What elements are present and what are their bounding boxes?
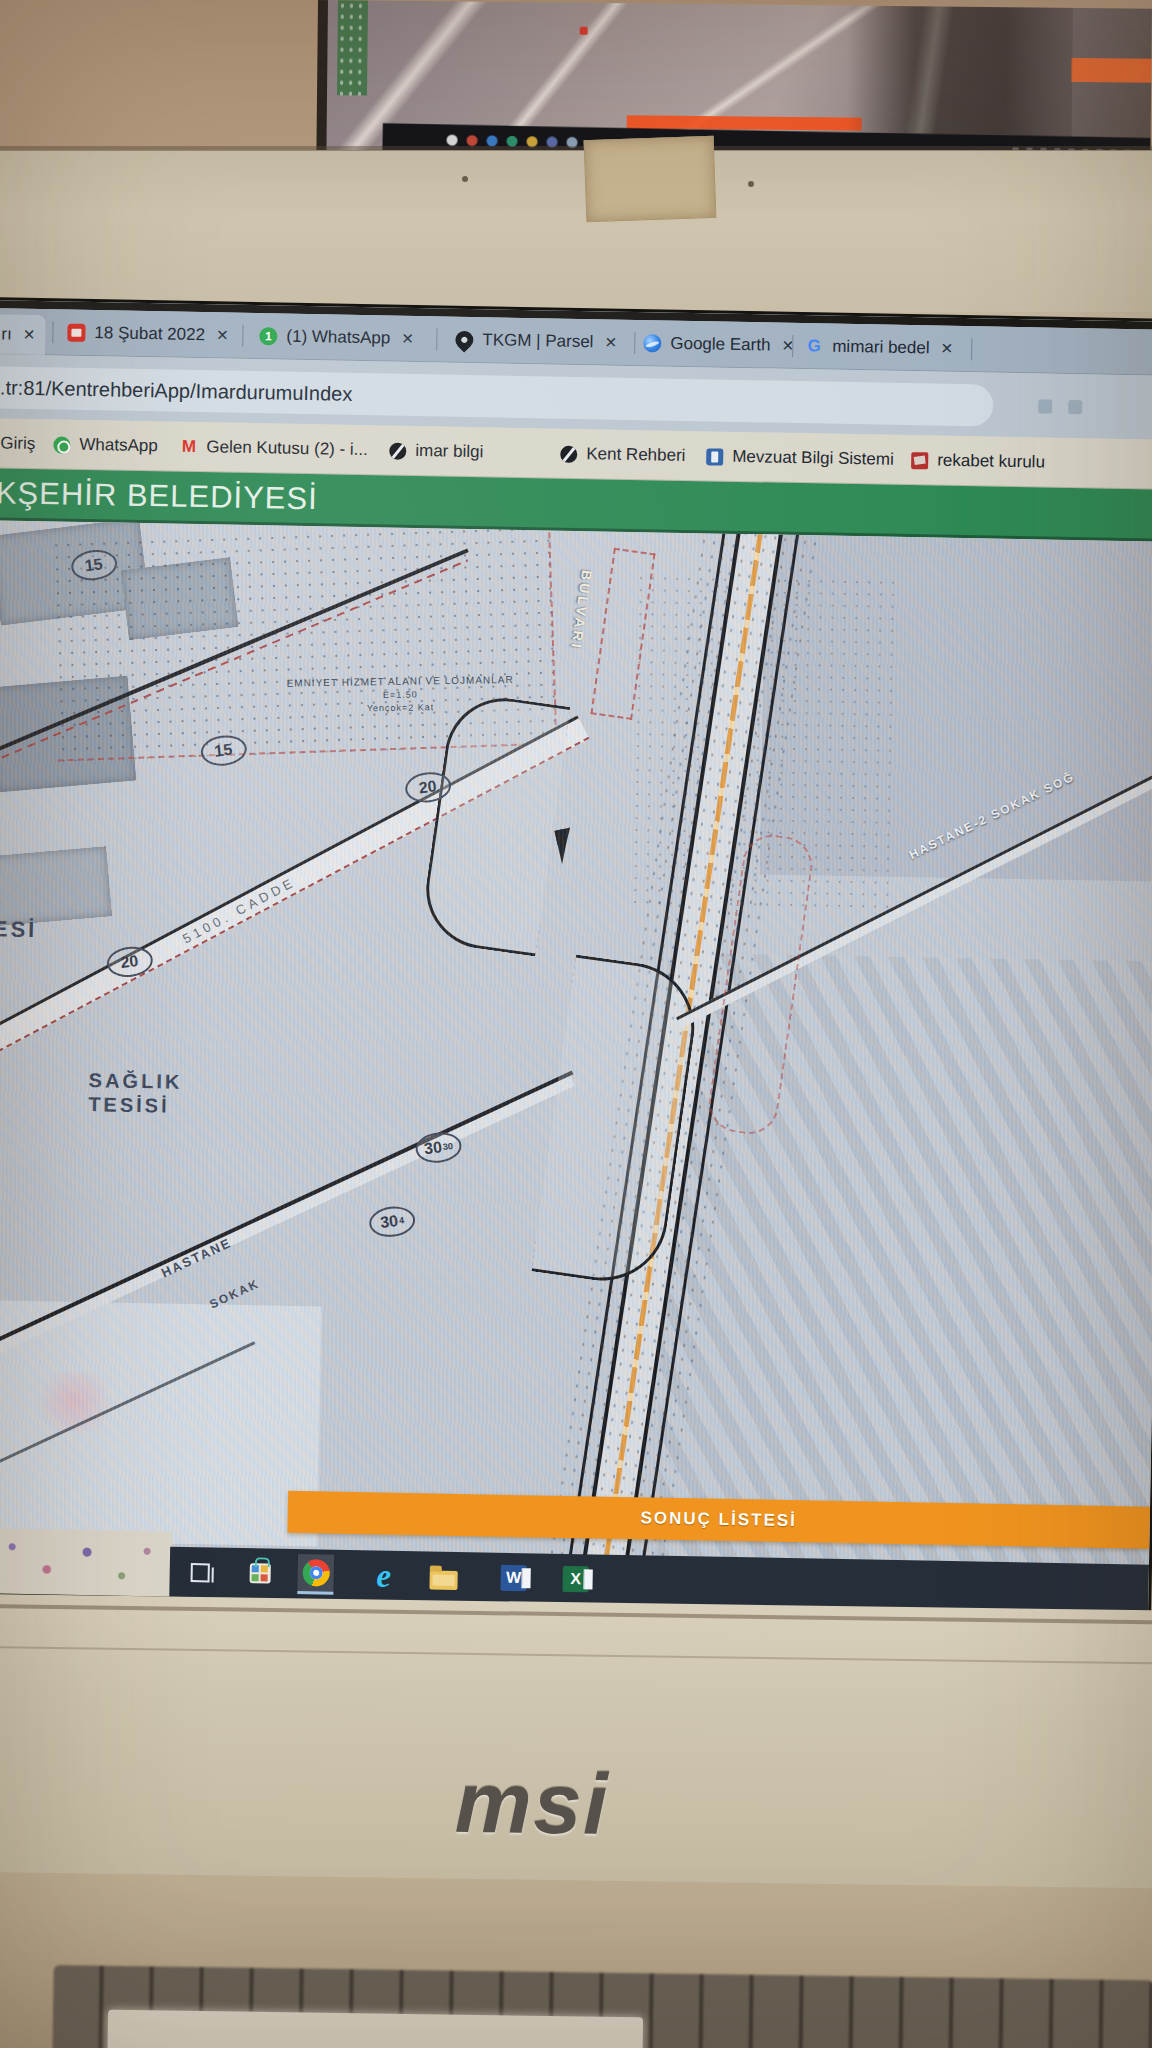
microphone-hole [462, 176, 468, 182]
page-title: ÜKŞEHİR BELEDİYESİ [0, 474, 318, 516]
road-width-marker: 304 [368, 1204, 417, 1239]
close-icon[interactable]: ✕ [214, 326, 231, 344]
laptop-screen: rı ✕ 18 Şubat 2022 ✕ 1 (1) WhatsApp ✕ TK… [0, 300, 1152, 1622]
marker-value: 20 [418, 777, 438, 797]
file-explorer-icon [429, 1570, 457, 1590]
google-favicon: G [805, 337, 823, 355]
close-icon[interactable]: ✕ [602, 333, 619, 351]
marker-value: 30 [379, 1212, 399, 1232]
task-view-icon [190, 1563, 209, 1582]
photo-scene: rı ✕ 18 Şubat 2022 ✕ 1 (1) WhatsApp ✕ TK… [0, 0, 1152, 2048]
word-button[interactable]: W [495, 1558, 532, 1599]
facility-label-tesi: TESİ [0, 916, 38, 943]
monitor-orange-chip [1071, 58, 1152, 83]
google-earth-favicon [643, 334, 661, 352]
chrome-button[interactable] [297, 1554, 334, 1595]
msi-logo: msi [454, 1753, 610, 1854]
close-icon[interactable]: ✕ [938, 340, 955, 358]
tab-whatsapp[interactable]: 1 (1) WhatsApp ✕ [259, 313, 416, 362]
whatsapp-favicon: 1 [259, 327, 277, 345]
marker-value: 20 [119, 952, 139, 972]
excel-icon: X [562, 1566, 588, 1592]
tab-label: Google Earth [670, 334, 771, 356]
desktop-wallpaper [0, 1528, 172, 1598]
tab-separator [242, 325, 243, 347]
gmail-icon: M [180, 438, 197, 455]
laptop-lid-edge [0, 146, 1152, 151]
monitor-taskbar-icon [486, 135, 497, 146]
bookmark-label: imar bilgi [415, 441, 483, 462]
hinge-line [0, 1604, 1152, 1625]
bookmark-label: Giriş [0, 433, 35, 454]
webcam-tape [584, 136, 717, 222]
calendar-page-favicon [67, 324, 85, 342]
bookmark-whatsapp[interactable]: WhatsApp [53, 419, 158, 471]
tab-label: 18 Şubat 2022 [94, 323, 205, 345]
marker-value: 15 [213, 741, 233, 761]
bookmark-label: rekabet kurulu [937, 451, 1045, 473]
marker-sup: 30 [442, 1141, 453, 1152]
microphone-hole [748, 181, 754, 187]
bookmark-gelen-kutusu[interactable]: M Gelen Kutusu (2) - i... [180, 422, 368, 475]
tab-18-subat[interactable]: 18 Şubat 2022 ✕ [67, 310, 231, 359]
close-icon[interactable]: ✕ [21, 326, 38, 344]
mouse-cursor [554, 827, 577, 864]
road-label: 5100. CADDE [180, 874, 298, 946]
url-field[interactable]: el.tr:81/KentrehberiApp/ImardurumuIndex [0, 366, 994, 427]
building-block [0, 846, 112, 926]
monitor-taskbar-icon [466, 135, 477, 146]
internet-explorer-icon: e [376, 1560, 391, 1590]
keyboard-light-strip [107, 2010, 643, 2048]
tab-label: (1) WhatsApp [286, 327, 390, 349]
rekabet-icon [911, 452, 928, 469]
store-icon [249, 1563, 270, 1583]
internet-explorer-button[interactable]: e [365, 1555, 402, 1596]
tab-mimari-bedel[interactable]: G mimari bedel ✕ [805, 323, 956, 372]
store-button[interactable] [241, 1553, 278, 1594]
bookmark-label: Gelen Kutusu (2) - i... [206, 437, 368, 460]
monitor-map-marker [580, 27, 588, 35]
facility-label-line: SAĞLIK [89, 1068, 183, 1094]
chrome-icon [302, 1559, 329, 1586]
tab-label: rı [1, 324, 12, 344]
word-icon: W [500, 1565, 526, 1591]
monitor-taskbar-icon [446, 135, 457, 146]
bookmark-kent-rehberi[interactable]: Kent Rehberi [560, 429, 686, 481]
map-pin-favicon [452, 327, 477, 352]
bookmark-giris[interactable]: Giriş [0, 418, 36, 469]
url-text: el.tr:81/KentrehberiApp/ImardurumuIndex [0, 376, 353, 406]
bookmark-label: WhatsApp [79, 435, 158, 456]
globe-icon [389, 442, 406, 459]
extension-icon[interactable] [1068, 400, 1082, 414]
marker-sup: 4 [398, 1215, 404, 1226]
close-icon[interactable]: ✕ [399, 330, 416, 348]
road-label-bulvari: BULVARI [568, 569, 595, 652]
bookmark-label: Mevzuat Bilgi Sistemi [732, 447, 894, 470]
excel-button[interactable]: X [557, 1559, 594, 1600]
bookmark-rekabet[interactable]: rekabet kurulu [911, 435, 1046, 487]
tab-partial[interactable]: rı ✕ [0, 314, 46, 355]
tab-tkgm-parsel[interactable]: TKGM | Parsel ✕ [455, 317, 620, 366]
facility-label-saglik-tesisi: SAĞLIK TESİSİ [88, 1068, 182, 1118]
hinge-line [0, 1646, 1152, 1665]
mevzuat-icon [706, 448, 723, 465]
monitor-screen [316, 0, 1152, 169]
file-explorer-button[interactable] [425, 1556, 462, 1597]
whatsapp-icon [53, 436, 70, 453]
marker-value: 15 [84, 555, 104, 575]
bookmark-mevzuat[interactable]: Mevzuat Bilgi Sistemi [706, 431, 894, 484]
laptop-bottom-bezel: msi [0, 1594, 1152, 1891]
tab-google-earth[interactable]: Google Earth ✕ [643, 320, 797, 369]
tab-separator [634, 332, 635, 354]
task-view-button[interactable] [181, 1552, 218, 1593]
marker-value: 30 [423, 1138, 443, 1158]
extension-icon[interactable] [1038, 399, 1052, 413]
close-icon[interactable]: ✕ [779, 337, 796, 355]
result-list-label: SONUÇ LİSTESİ [640, 1508, 797, 1531]
globe-icon [560, 445, 577, 462]
tab-separator [52, 321, 53, 343]
facility-label-line: TESİSİ [88, 1092, 182, 1118]
tab-label: TKGM | Parsel [482, 330, 594, 352]
laptop-top-bezel [0, 150, 1152, 312]
keyboard-deck [0, 1872, 1152, 2048]
map-viewport[interactable]: EMNİYET HİZMET ALANI VE LOJMANLAR E=1.50… [0, 520, 1152, 1571]
tab-separator [971, 338, 972, 360]
monitor-legend-strip [337, 0, 368, 95]
tab-label: mimari bedel [832, 337, 930, 359]
tab-separator [436, 328, 437, 350]
bookmark-imar-bilgi[interactable]: imar bilgi [389, 426, 484, 478]
bookmark-label: Kent Rehberi [586, 444, 686, 466]
